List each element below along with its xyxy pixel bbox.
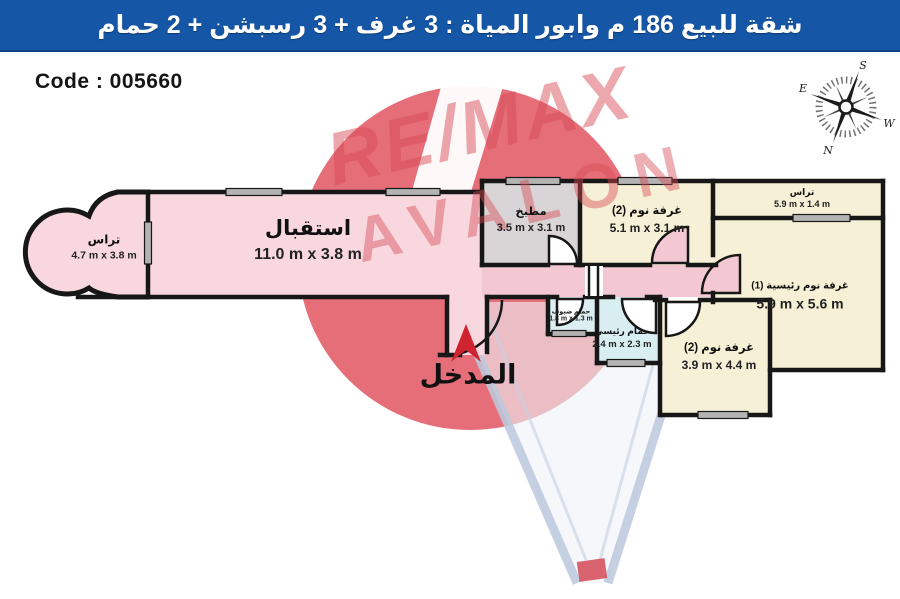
room-dims: 4.7 m x 3.8 m bbox=[71, 250, 136, 262]
room-name: غرفة نوم (2) bbox=[610, 203, 685, 217]
room-name: استقبال bbox=[254, 216, 362, 241]
kitchen-door bbox=[549, 236, 577, 264]
label-entrance: المدخل bbox=[420, 360, 517, 391]
terrace-tr-window bbox=[793, 215, 850, 222]
room-name: حمام ضيوف bbox=[549, 308, 593, 316]
room-dims: 3.9 m x 4.4 m bbox=[682, 358, 757, 372]
balloon-bottom-fill bbox=[455, 302, 697, 583]
page-title: شقة للبيع 186 م وابور المياة : 3 غرف + 3… bbox=[97, 10, 802, 40]
compass-label-n: N bbox=[822, 144, 833, 157]
room-name: حمام رئيسي bbox=[592, 326, 651, 337]
label-guest-bathroom: حمام ضيوف 1.8 m x 1.3 m bbox=[549, 308, 593, 323]
balloon-rope-left bbox=[455, 302, 577, 583]
label-bedroom-3: غرفة نوم (2) 3.9 m x 4.4 m bbox=[682, 340, 757, 372]
listing-code: Code : 005660 bbox=[35, 70, 183, 94]
label-master-bathroom: حمام رئيسي 2.4 m x 2.3 m bbox=[592, 326, 651, 350]
room-dims: 5.9 m x 1.4 m bbox=[774, 199, 830, 209]
room-dims: 3.5 m x 3.1 m bbox=[497, 222, 566, 234]
master-bedroom-door bbox=[702, 255, 740, 293]
room-name: تراس bbox=[774, 187, 830, 198]
label-bedroom-2: غرفة نوم (2) 5.1 m x 3.1 m bbox=[610, 203, 685, 235]
compass-label-e: E bbox=[798, 82, 807, 95]
room-dims: 1.8 m x 1.3 m bbox=[549, 316, 593, 323]
floorplan-page: { "title_bar": { "text": "شقة للبيع 186 … bbox=[0, 0, 900, 599]
label-kitchen: مطبخ 3.5 m x 3.1 m bbox=[497, 204, 566, 234]
room-name: تراس bbox=[71, 233, 136, 247]
room-dims: 5.1 m x 3.1 m bbox=[610, 221, 685, 235]
room-dims: 11.0 m x 3.8 m bbox=[254, 246, 362, 264]
room-name: مطبخ bbox=[497, 204, 566, 218]
title-bar: شقة للبيع 186 م وابور المياة : 3 غرف + 3… bbox=[0, 0, 900, 52]
balloon-basket bbox=[577, 558, 608, 582]
guest-bathroom-window bbox=[552, 331, 586, 337]
room-name: غرفة نوم رئيسية (1) bbox=[751, 281, 849, 292]
room-dims: 2.4 m x 2.3 m bbox=[592, 339, 651, 350]
label-terrace-left: تراس 4.7 m x 3.8 m bbox=[71, 233, 136, 262]
label-terrace-top-right: تراس 5.9 m x 1.4 m bbox=[774, 187, 830, 209]
compass-rose: S E W N bbox=[794, 58, 898, 158]
label-reception: استقبال 11.0 m x 3.8 m bbox=[254, 216, 362, 264]
hallway-partition bbox=[585, 265, 603, 297]
balloon-rope-inner-left bbox=[483, 302, 586, 560]
room-dims: 5.9 m x 5.6 m bbox=[751, 296, 849, 312]
room-name: غرفة نوم (2) bbox=[682, 340, 757, 354]
terrace-left-window bbox=[145, 222, 152, 264]
compass-label-s: S bbox=[859, 59, 867, 72]
entrance-door-arc bbox=[447, 300, 502, 355]
compass-label-w: W bbox=[883, 117, 896, 130]
bedroom-3-door bbox=[666, 302, 700, 336]
bedroom-3-window bbox=[698, 412, 748, 419]
master-bathroom-window bbox=[607, 360, 645, 367]
reception-window-1 bbox=[226, 189, 282, 196]
label-master-bedroom: غرفة نوم رئيسية (1) 5.9 m x 5.6 m bbox=[751, 281, 849, 312]
entrance-arrow-icon bbox=[451, 324, 481, 362]
compass-hub bbox=[840, 101, 853, 114]
room-hallway bbox=[482, 265, 716, 297]
